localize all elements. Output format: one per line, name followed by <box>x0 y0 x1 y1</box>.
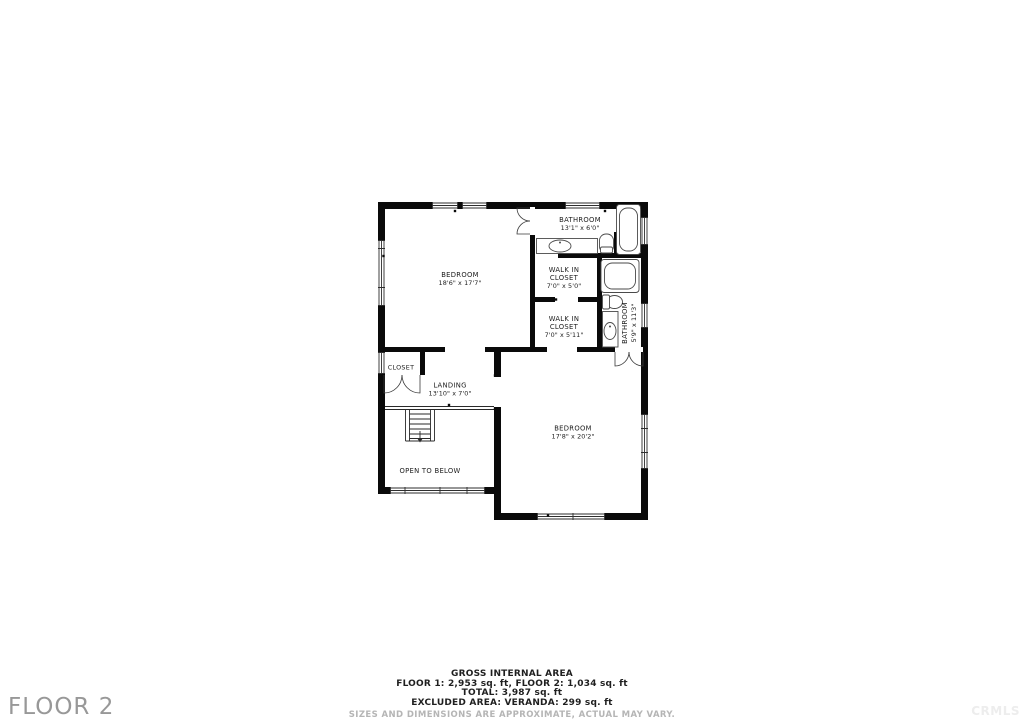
door-swing-icon <box>384 375 402 393</box>
total-area-line: TOTAL: 3,987 sq. ft <box>0 688 1024 698</box>
window-icon <box>565 202 600 209</box>
bathroom1-dims: 13'1" x 6'0" <box>561 224 600 232</box>
disclaimer-line: SIZES AND DIMENSIONS ARE APPROXIMATE, AC… <box>0 710 1024 720</box>
bedroom1-label: BEDROOM <box>441 271 479 279</box>
bathroom2-dims: 5'9" x 11'3" <box>630 304 638 343</box>
bathroom2-label: BATHROOM <box>621 302 629 344</box>
window-icon <box>432 202 458 209</box>
window-icon <box>378 240 385 306</box>
floorplan-drawing: BATHROOM 13'1" x 6'0" BEDROOM 18'6" x 17… <box>0 0 1024 724</box>
walkin-closet2-label-line1: WALK IN <box>549 315 580 323</box>
bedroom1-dims: 18'6" x 17'7" <box>439 279 482 287</box>
window-icon <box>462 202 487 209</box>
door-swing-icon <box>517 208 530 221</box>
bathroom1-label: BATHROOM <box>559 216 601 224</box>
walkin-closet1-dims: 7'0" x 5'0" <box>547 282 582 290</box>
bedroom2-dims: 17'8" x 20'2" <box>552 433 595 441</box>
bathtub-icon <box>601 260 639 293</box>
stairs-icon <box>406 410 435 443</box>
walkin-closet2-dims: 7'0" x 5'11" <box>545 331 584 339</box>
bathtub-icon <box>617 205 641 255</box>
window-icon <box>641 217 648 245</box>
door-swing-icon <box>615 352 629 366</box>
toilet-icon <box>603 295 623 309</box>
landing-label: LANDING <box>433 382 466 390</box>
fixtures <box>385 205 641 443</box>
crmls-watermark: CRMLS <box>971 704 1020 718</box>
walkin-closet1-label-line1: WALK IN <box>549 266 580 274</box>
sink-vanity-icon <box>537 239 598 254</box>
door-swing-icon <box>517 221 530 234</box>
excluded-area-line: EXCLUDED AREA: VERANDA: 299 sq. ft <box>0 698 1024 708</box>
open-to-below-label: OPEN TO BELOW <box>399 467 460 475</box>
floor-areas-line: FLOOR 1: 2,953 sq. ft, FLOOR 2: 1,034 sq… <box>0 679 1024 689</box>
railing <box>385 407 494 410</box>
floor-number-label: FLOOR 2 <box>8 694 114 720</box>
bedroom2-label: BEDROOM <box>554 425 592 433</box>
stairs-down-arrow-icon <box>417 438 423 443</box>
window-icon <box>641 303 648 328</box>
window-icon <box>378 352 385 374</box>
walkin-closet1-label-line2: CLOSET <box>550 274 579 282</box>
sink-vanity-icon <box>603 312 619 348</box>
floorplan-page: BATHROOM 13'1" x 6'0" BEDROOM 18'6" x 17… <box>0 0 1024 724</box>
door-swing-icon <box>402 375 420 393</box>
window-icon <box>390 487 485 494</box>
landing-dims: 13'10" x 7'0" <box>429 390 472 398</box>
toilet-icon <box>600 234 614 253</box>
door-swing-icon <box>629 352 643 366</box>
gross-internal-area-title: GROSS INTERNAL AREA <box>0 669 1024 679</box>
closet-label: CLOSET <box>388 364 415 372</box>
walkin-closet2-label-line2: CLOSET <box>550 323 579 331</box>
window-icon <box>641 414 648 469</box>
